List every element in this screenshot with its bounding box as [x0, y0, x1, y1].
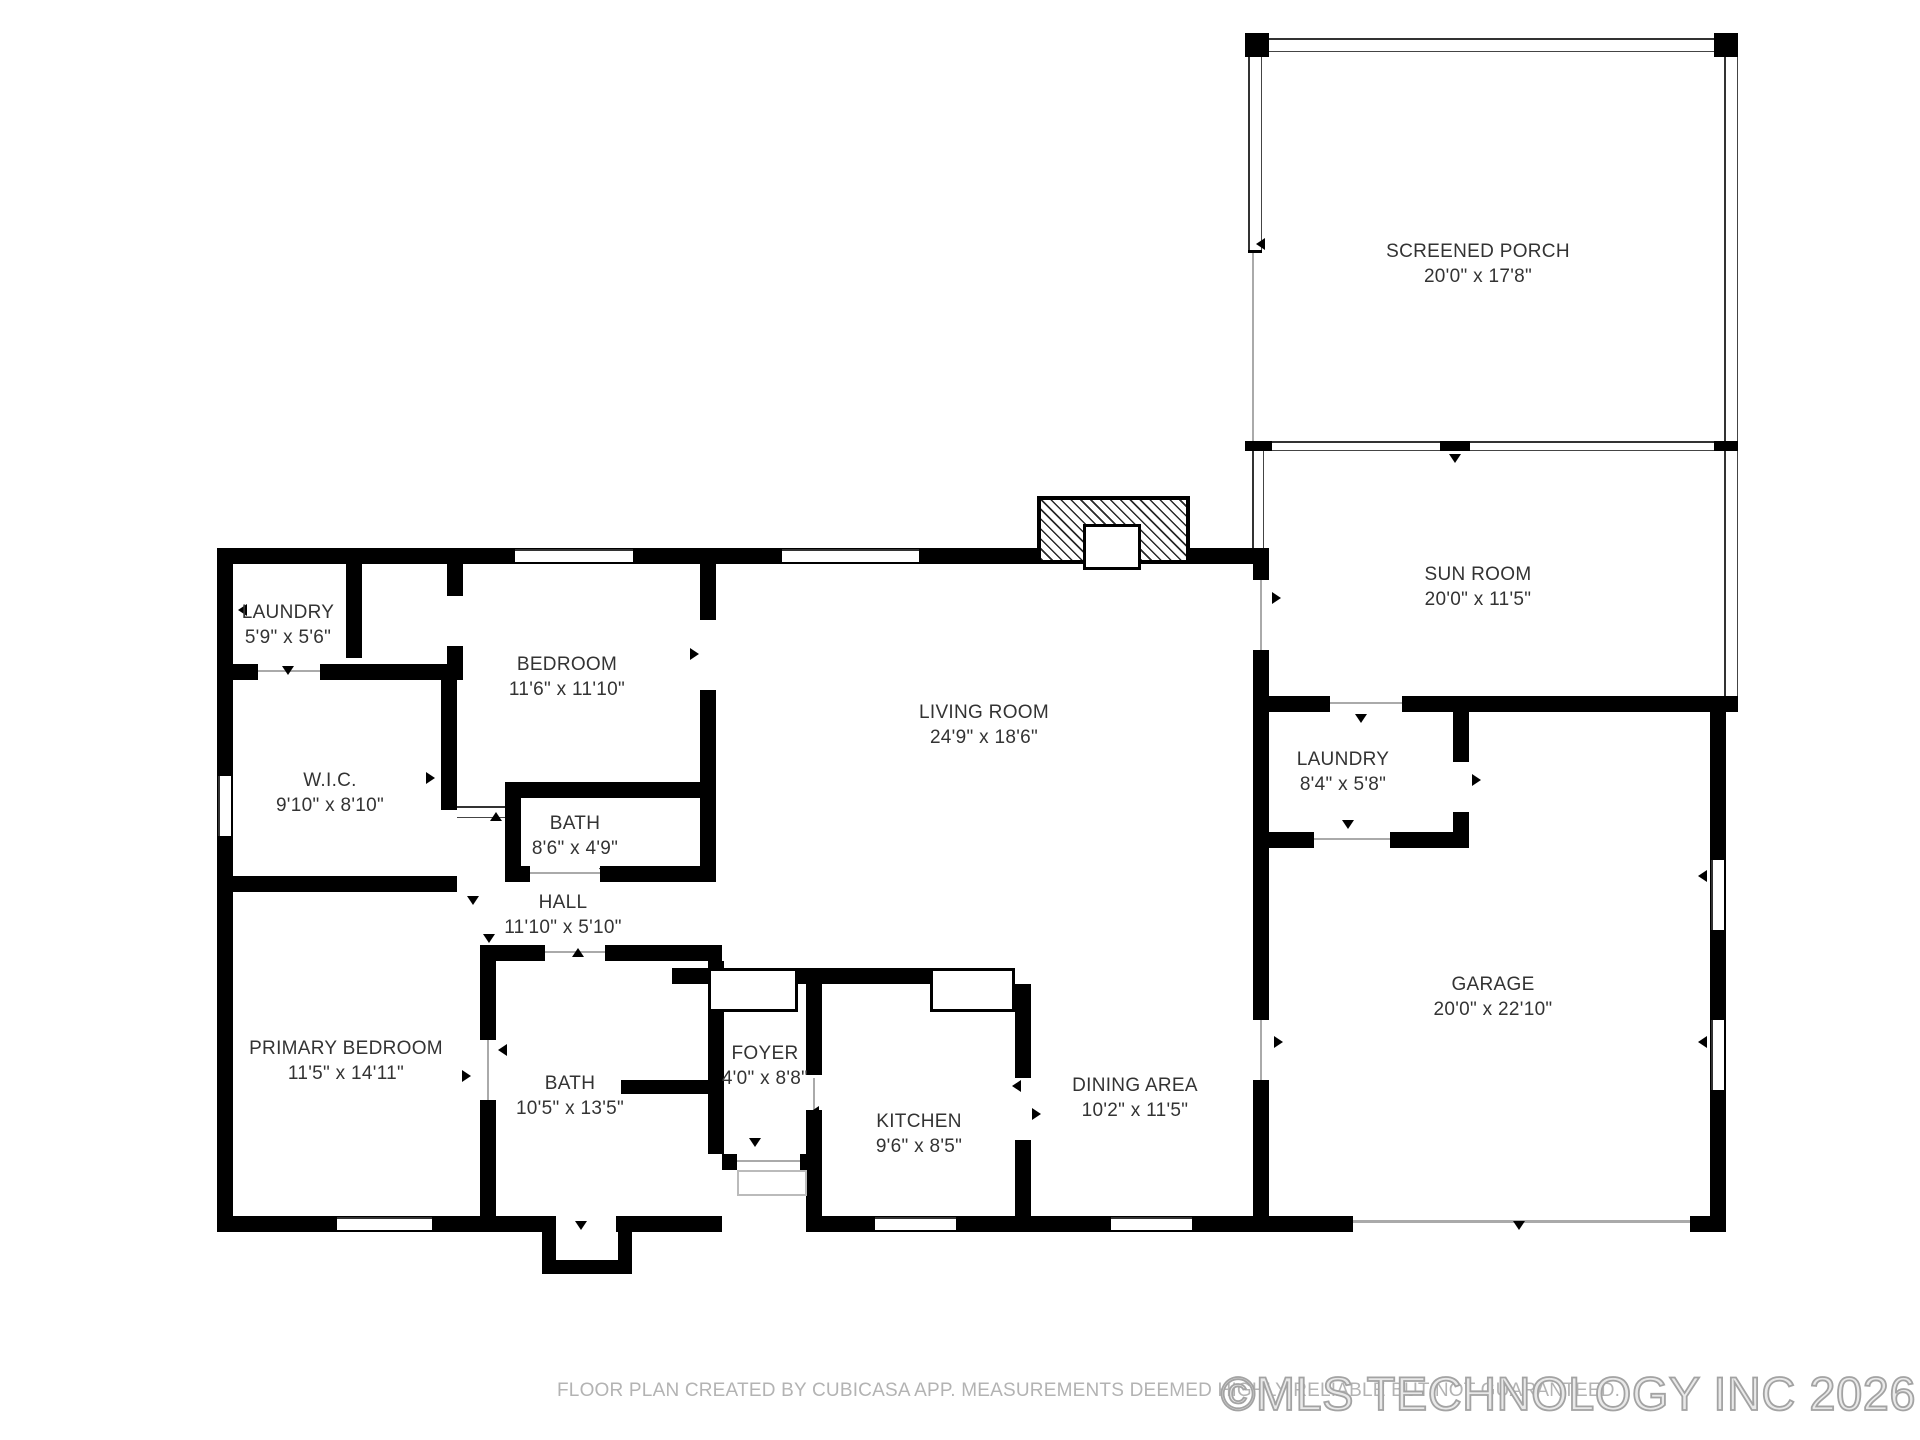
door-arrow-icon	[1012, 1080, 1021, 1092]
wall	[806, 968, 822, 1075]
wall	[700, 690, 716, 782]
wall	[480, 1100, 496, 1232]
wall	[217, 1216, 337, 1232]
wall	[1440, 441, 1470, 451]
wall	[1710, 930, 1726, 1020]
window	[1710, 1020, 1726, 1090]
room-name: BATH	[532, 811, 618, 836]
wall	[1248, 250, 1262, 253]
room-label-hall: HALL11'10" x 5'10"	[504, 890, 622, 940]
wall	[722, 1154, 737, 1170]
wall	[217, 548, 233, 776]
door-arrow-icon	[690, 648, 699, 660]
room-label-garage: GARAGE20'0" x 22'10"	[1434, 972, 1553, 1022]
door-arrow-icon	[1342, 820, 1354, 829]
room-name: KITCHEN	[876, 1109, 962, 1134]
room-name: SUN ROOM	[1425, 562, 1532, 587]
window	[1710, 860, 1726, 930]
wall	[822, 1216, 875, 1232]
room-dimensions: 10'5" x 13'5"	[516, 1096, 624, 1121]
door-arrow-icon	[749, 1138, 761, 1147]
room-dimensions: 9'10" x 8'10"	[276, 793, 384, 818]
window-pane-line	[337, 1217, 432, 1219]
screen-wall	[1248, 57, 1262, 250]
wall	[1269, 832, 1314, 848]
wall	[1245, 33, 1269, 57]
room-dimensions: 20'0" x 17'8"	[1386, 264, 1570, 289]
screen-center-line	[1724, 57, 1726, 441]
screen-center-line	[457, 806, 505, 808]
room-label-wic: W.I.C.9'10" x 8'10"	[276, 768, 384, 818]
screen-wall	[1724, 57, 1738, 441]
wall	[806, 1154, 822, 1232]
wall	[480, 961, 496, 1040]
door-line	[1314, 838, 1390, 840]
wall	[1253, 650, 1269, 696]
door-arrow-icon	[467, 896, 479, 905]
wall	[505, 782, 716, 798]
floor-plan: SCREENED PORCH20'0" x 17'8"SUN ROOM20'0"…	[0, 0, 1920, 1440]
room-dimensions: 11'5" x 14'11"	[249, 1061, 443, 1086]
room-dimensions: 20'0" x 11'5"	[1425, 587, 1532, 612]
wall	[1015, 984, 1031, 1078]
door-arrow-icon	[810, 1106, 819, 1118]
screen-center-line	[1272, 441, 1440, 443]
door-line	[1330, 702, 1402, 704]
room-name: LAUNDRY	[1297, 747, 1390, 772]
fireplace-hearth	[1083, 524, 1141, 570]
door-line	[737, 1160, 800, 1162]
wall	[618, 1232, 632, 1274]
window	[337, 1216, 432, 1232]
window	[515, 548, 633, 564]
room-label-laundry-top: LAUNDRY5'9" x 5'6"	[242, 600, 335, 650]
window-pane-line	[875, 1217, 956, 1219]
door-arrow-icon	[483, 934, 495, 943]
window-pane-line	[1111, 1217, 1192, 1219]
door-arrow-icon	[282, 666, 294, 675]
door-arrow-icon	[1698, 1036, 1707, 1048]
screen-center-line	[1470, 441, 1714, 443]
door-arrow-icon	[1355, 714, 1367, 723]
door-arrow-icon	[1472, 774, 1481, 786]
room-label-laundry-right: LAUNDRY8'4" x 5'8"	[1297, 747, 1390, 797]
wall	[605, 945, 722, 961]
room-name: FOYER	[722, 1041, 808, 1066]
wall	[616, 1216, 722, 1232]
screen-wall	[1269, 38, 1714, 52]
pass-through-window	[708, 968, 798, 1012]
room-dimensions: 24'9" x 18'6"	[919, 725, 1049, 750]
wall	[621, 1080, 708, 1094]
screen-wall	[1470, 441, 1714, 451]
door-arrow-icon	[572, 948, 584, 957]
room-name: HALL	[504, 890, 622, 915]
wall	[919, 548, 1037, 564]
room-label-kitchen: KITCHEN9'6" x 8'5"	[876, 1109, 962, 1159]
wall	[798, 968, 930, 984]
screen-center-line	[1248, 57, 1250, 250]
room-dimensions: 11'10" x 5'10"	[504, 915, 622, 940]
wall	[1390, 832, 1469, 848]
wall	[447, 548, 463, 596]
wall	[1192, 1216, 1253, 1232]
screen-wall	[1724, 451, 1738, 696]
wall	[217, 836, 233, 1232]
door-arrow-icon	[426, 772, 435, 784]
wall	[1253, 712, 1269, 848]
window	[782, 548, 919, 564]
room-label-screened-porch: SCREENED PORCH20'0" x 17'8"	[1386, 239, 1570, 289]
door-arrow-icon	[599, 868, 611, 877]
wall	[233, 664, 258, 680]
wall	[217, 548, 515, 564]
window-pane-line	[218, 776, 220, 836]
room-label-dining-area: DINING AREA10'2" x 11'5"	[1072, 1073, 1198, 1123]
room-name: PRIMARY BEDROOM	[249, 1036, 443, 1061]
wall	[1710, 1090, 1726, 1232]
window-pane-line	[515, 549, 633, 551]
wall	[505, 866, 530, 882]
door-line	[1260, 1020, 1262, 1080]
room-name: LAUNDRY	[242, 600, 335, 625]
screen-wall	[1252, 451, 1264, 548]
wall	[1245, 441, 1272, 451]
wall	[956, 1216, 1111, 1232]
room-label-foyer: FOYER4'0" x 8'8"	[722, 1041, 808, 1091]
door-arrow-icon	[352, 604, 361, 616]
room-dimensions: 5'9" x 5'6"	[242, 625, 335, 650]
room-label-bath-top: BATH8'6" x 4'9"	[532, 811, 618, 861]
room-dimensions: 8'4" x 5'8"	[1297, 772, 1390, 797]
room-label-bedroom: BEDROOM11'6" x 11'10"	[509, 652, 625, 702]
room-name: SCREENED PORCH	[1386, 239, 1570, 264]
room-dimensions: 11'6" x 11'10"	[509, 677, 625, 702]
watermark-text: ©MLS TECHNOLOGY INC 2026	[1221, 1366, 1916, 1421]
room-name: BEDROOM	[509, 652, 625, 677]
wall	[346, 548, 362, 658]
room-dimensions: 10'2" x 11'5"	[1072, 1098, 1198, 1123]
room-label-sun-room: SUN ROOM20'0" x 11'5"	[1425, 562, 1532, 612]
screen-center-line	[1269, 38, 1714, 40]
door-arrow-icon	[462, 1070, 471, 1082]
door-arrow-icon	[1513, 1221, 1525, 1230]
door-arrow-icon	[498, 1044, 507, 1056]
room-dimensions: 20'0" x 22'10"	[1434, 997, 1553, 1022]
wall	[700, 548, 716, 620]
entry-step	[737, 1170, 807, 1196]
wall	[1253, 848, 1269, 1020]
wall	[600, 866, 706, 882]
window-pane-line	[1711, 1020, 1713, 1090]
window	[1111, 1216, 1192, 1232]
wall	[1453, 712, 1469, 762]
wall	[1402, 696, 1738, 712]
room-name: LIVING ROOM	[919, 700, 1049, 725]
wall	[1015, 1140, 1031, 1216]
window	[875, 1216, 956, 1232]
door-arrow-icon	[1272, 592, 1281, 604]
wall	[672, 968, 708, 984]
room-name: GARAGE	[1434, 972, 1553, 997]
door-line	[487, 1040, 489, 1100]
room-label-living-room: LIVING ROOM24'9" x 18'6"	[919, 700, 1049, 750]
wall	[1714, 441, 1738, 451]
door-line	[1260, 580, 1262, 650]
window-pane-line	[782, 549, 919, 551]
room-label-bath-bottom: BATH10'5" x 13'5"	[516, 1071, 624, 1121]
room-name: W.I.C.	[276, 768, 384, 793]
room-name: DINING AREA	[1072, 1073, 1198, 1098]
screen-center-line	[1252, 451, 1254, 548]
wall	[1710, 696, 1726, 860]
wall	[1253, 696, 1330, 712]
door-line	[1252, 253, 1254, 441]
screen-wall	[1272, 441, 1440, 451]
door-arrow-icon	[575, 1221, 587, 1230]
pass-through-window	[930, 968, 1015, 1012]
room-dimensions: 8'6" x 4'9"	[532, 836, 618, 861]
room-name: BATH	[516, 1071, 624, 1096]
door-arrow-icon	[1274, 1036, 1283, 1048]
door-arrow-icon	[1449, 454, 1461, 463]
door-arrow-icon	[1256, 238, 1265, 250]
screen-center-line	[1724, 451, 1726, 696]
window	[217, 776, 233, 836]
door-arrow-icon	[1032, 1108, 1041, 1120]
wall	[1253, 548, 1269, 580]
door-line	[530, 872, 600, 874]
door-arrow-icon	[1698, 870, 1707, 882]
room-label-primary-bedroom: PRIMARY BEDROOM11'5" x 14'11"	[249, 1036, 443, 1086]
wall	[441, 664, 457, 810]
window-pane-line	[1711, 860, 1713, 930]
room-dimensions: 9'6" x 8'5"	[876, 1134, 962, 1159]
room-dimensions: 4'0" x 8'8"	[722, 1066, 808, 1091]
wall	[1253, 1080, 1269, 1232]
door-arrow-icon	[490, 812, 502, 821]
wall	[233, 876, 457, 892]
wall	[1714, 33, 1738, 57]
wall	[480, 945, 545, 961]
